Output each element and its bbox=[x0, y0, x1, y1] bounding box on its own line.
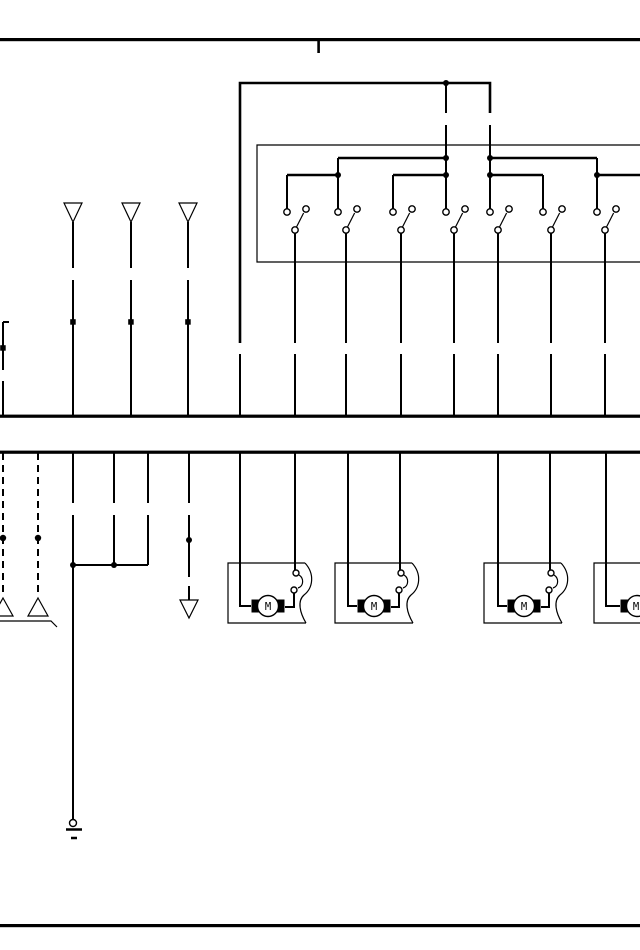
triangle-connector-2 bbox=[122, 203, 140, 415]
contact-circle bbox=[291, 587, 297, 593]
wiring-diagram-canvas: M M bbox=[0, 0, 640, 950]
motor-box-torn-edge bbox=[300, 563, 312, 623]
contact-arc bbox=[298, 575, 303, 588]
connector-square-dot bbox=[70, 319, 76, 325]
ground-bars-icon bbox=[66, 830, 82, 839]
connector-square-dot bbox=[0, 345, 6, 351]
motor-label: M bbox=[371, 601, 377, 613]
contact-to-motor-wire bbox=[285, 593, 294, 607]
connector-square-dot bbox=[128, 319, 134, 325]
motor-symbol: M bbox=[508, 596, 541, 617]
motor-unit-3: M bbox=[484, 453, 568, 623]
motor-symbol: M bbox=[252, 596, 285, 617]
contact-to-motor-wire bbox=[391, 593, 399, 607]
contact-circle bbox=[293, 570, 299, 576]
contact-circle bbox=[546, 587, 552, 593]
ground-symbol bbox=[66, 820, 82, 839]
breaker-contact bbox=[541, 570, 558, 607]
down-triangle-icon bbox=[180, 600, 198, 618]
switch-risers bbox=[287, 158, 597, 209]
motor-label: M bbox=[265, 601, 271, 613]
middle-bus-rail-lower bbox=[0, 451, 640, 454]
ground-run-wire bbox=[73, 565, 148, 819]
junction-dot bbox=[111, 562, 117, 568]
triangle-connector-1 bbox=[64, 203, 82, 415]
top-bus-rail bbox=[0, 38, 640, 41]
motor-feed-wire-left bbox=[606, 453, 620, 606]
up-triangle-icon bbox=[28, 598, 48, 616]
up-triangle-icon bbox=[0, 598, 13, 616]
motor-feed-wire-left bbox=[240, 453, 251, 606]
feed-loop-wire bbox=[240, 83, 490, 343]
switch-assembly bbox=[257, 145, 640, 415]
junction-dot bbox=[70, 562, 76, 568]
switch-contact-6 bbox=[540, 206, 565, 233]
motor-symbol: M bbox=[358, 596, 391, 617]
bus-junction-dot bbox=[335, 172, 341, 178]
junction-dot bbox=[0, 535, 6, 541]
feed-junction-dot bbox=[443, 80, 449, 86]
schematic-page: M M bbox=[0, 0, 640, 950]
contact-arc bbox=[553, 575, 558, 588]
bus-junction-dot bbox=[487, 155, 493, 161]
motor-unit-1: M bbox=[228, 453, 312, 623]
middle-bus-rail-upper bbox=[0, 415, 640, 418]
connector-square-dot bbox=[185, 319, 191, 325]
junction-dot bbox=[186, 537, 192, 543]
contact-circle bbox=[548, 570, 554, 576]
down-triangle-icon bbox=[64, 203, 82, 222]
down-triangle-icon bbox=[122, 203, 140, 222]
switch-contact-4 bbox=[443, 206, 468, 233]
switch-contact-5 bbox=[487, 206, 512, 233]
motor-unit-4: M bbox=[594, 453, 640, 623]
branch-wires bbox=[73, 453, 148, 565]
left-edge-stub bbox=[0, 322, 9, 415]
bus-junction-dot bbox=[443, 155, 449, 161]
down-triangle-icon bbox=[179, 203, 197, 222]
ground-junction-branch bbox=[66, 453, 148, 838]
shield-underline bbox=[0, 621, 57, 627]
motor-unit-2: M bbox=[335, 453, 419, 623]
bus-junction-dot bbox=[487, 172, 493, 178]
contact-to-motor-wire bbox=[541, 593, 549, 607]
shield-pair bbox=[0, 453, 57, 627]
contact-arc bbox=[403, 575, 408, 588]
down-triangle-branch bbox=[180, 453, 198, 618]
switch-feed-buses bbox=[287, 158, 640, 175]
switch-contact-3 bbox=[390, 206, 415, 233]
switch-contact-2 bbox=[335, 206, 360, 233]
bus-junction-dot bbox=[594, 172, 600, 178]
triangle-connector-3 bbox=[179, 203, 197, 415]
motor-box-torn-edge bbox=[407, 563, 419, 623]
feed-loop bbox=[240, 80, 490, 415]
switch-box-outline bbox=[257, 145, 640, 262]
junction-dot bbox=[35, 535, 41, 541]
motor-box-torn-edge bbox=[556, 563, 568, 623]
contact-circle bbox=[398, 570, 404, 576]
motor-label: M bbox=[521, 601, 527, 613]
motor-symbol: M bbox=[621, 596, 640, 617]
ground-terminal-circle bbox=[70, 820, 77, 827]
bus-junction-dot bbox=[443, 172, 449, 178]
switch-contact-7 bbox=[594, 206, 619, 233]
switch-output-wires bbox=[295, 233, 605, 415]
contact-circle bbox=[396, 587, 402, 593]
breaker-contact bbox=[391, 570, 408, 607]
motor-feed-wire-left bbox=[498, 453, 507, 606]
bottom-bus-rail bbox=[0, 924, 640, 927]
switch-contact-1 bbox=[284, 206, 309, 233]
motor-label: M bbox=[633, 601, 639, 613]
stub-wire bbox=[3, 322, 9, 415]
top-rail-tick bbox=[317, 41, 320, 53]
motor-feed-wire-left bbox=[348, 453, 357, 606]
